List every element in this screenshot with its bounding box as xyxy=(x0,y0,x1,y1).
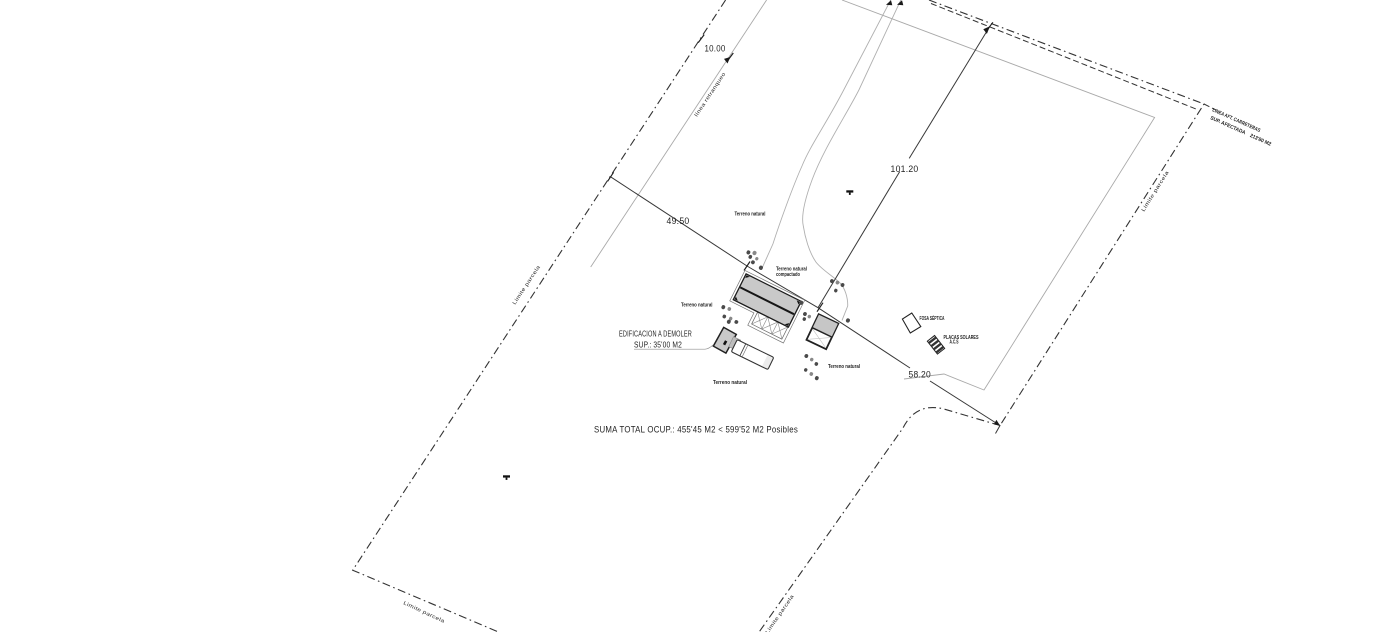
svg-text:SUP.: 35'00 M2: SUP.: 35'00 M2 xyxy=(634,340,682,349)
svg-text:101.20: 101.20 xyxy=(891,164,919,175)
svg-text:SUMA TOTAL OCUP.: 455'45 M: SUMA TOTAL OCUP.: 455'45 M2 < 599'52 M2 … xyxy=(594,424,798,435)
svg-text:Terreno natural: Terreno natural xyxy=(681,302,713,308)
svg-text:FOSA SÉPTICA: FOSA SÉPTICA xyxy=(920,314,945,322)
svg-text:58.20: 58.20 xyxy=(909,370,932,381)
svg-text:compactado: compactado xyxy=(776,272,800,278)
svg-text:Terreno natural: Terreno natural xyxy=(735,211,766,217)
svg-text:EDIFICACION A DEMOLER: EDIFICACION A DEMOLER xyxy=(619,330,692,339)
svg-text:10.00: 10.00 xyxy=(705,43,726,54)
svg-text:A.C.S: A.C.S xyxy=(950,339,959,345)
svg-text:Terreno natural: Terreno natural xyxy=(828,364,860,370)
svg-text:Terreno natural: Terreno natural xyxy=(713,380,747,386)
svg-text:49.50: 49.50 xyxy=(667,216,690,227)
